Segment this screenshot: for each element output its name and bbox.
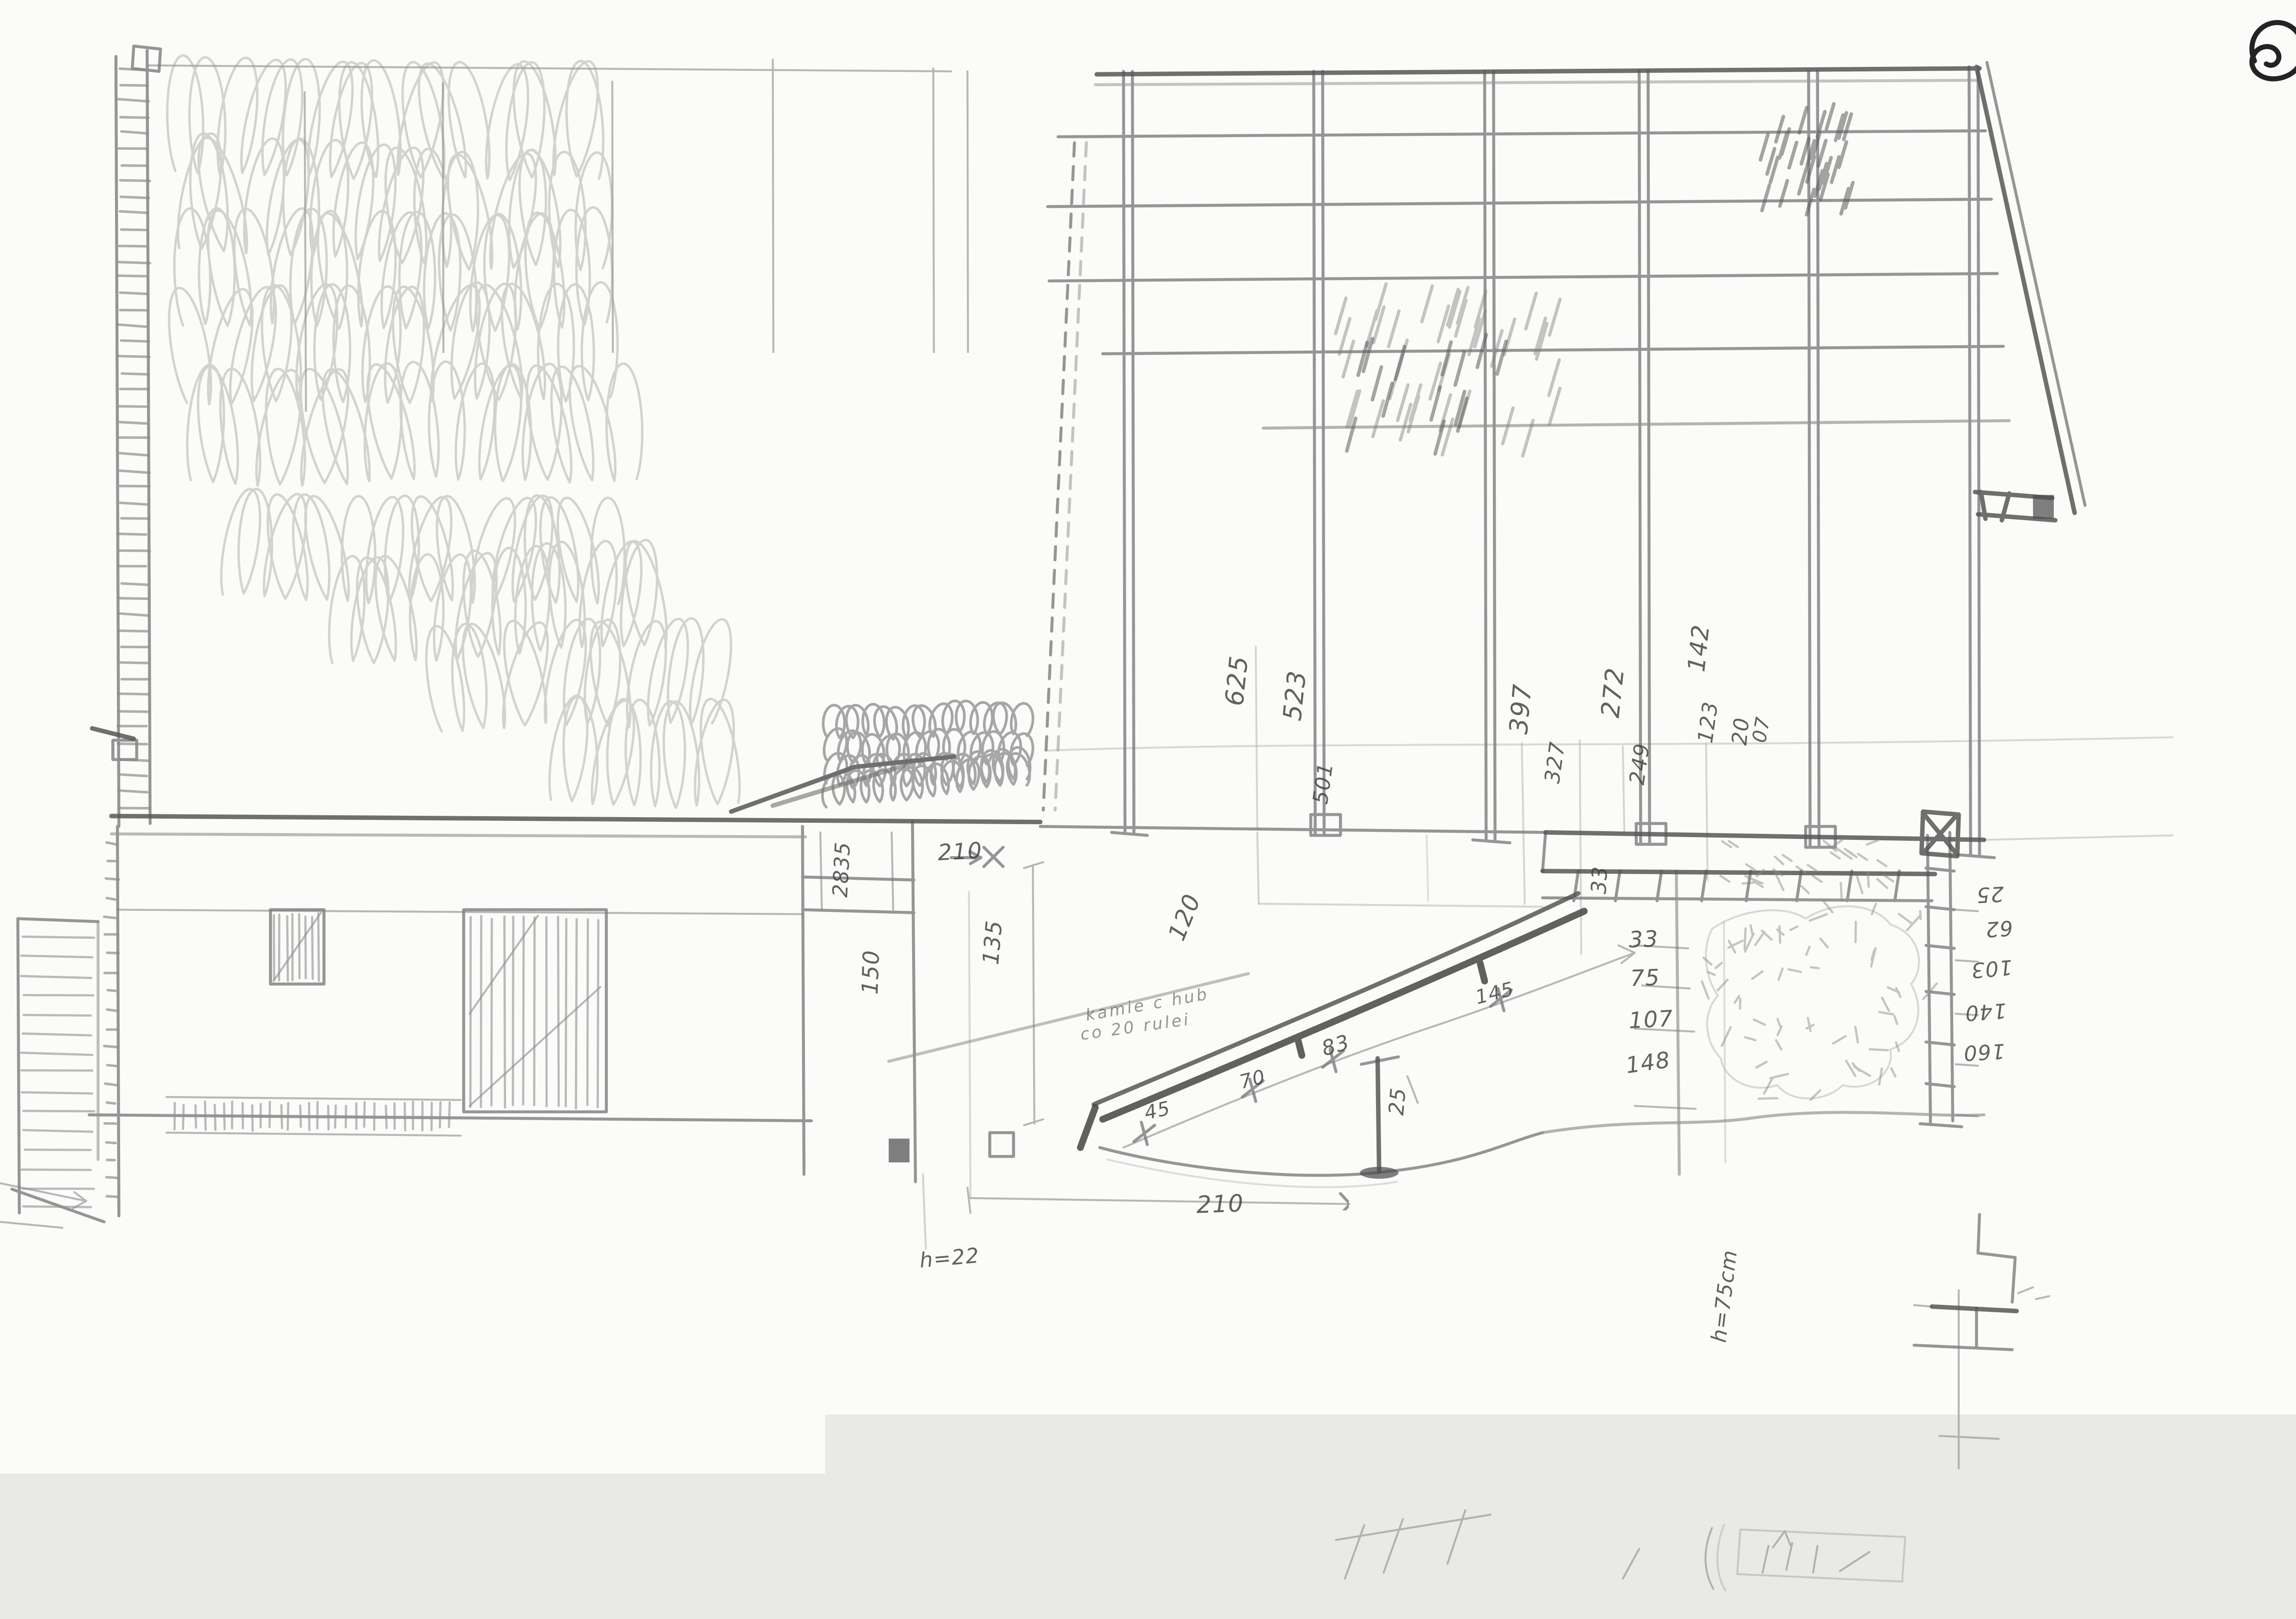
sum-left-7: 37 <box>1519 1591 1550 1619</box>
dim-523: 523 <box>1279 669 1313 722</box>
sum-left-2: 33 <box>1514 1475 1545 1503</box>
sum-right-3: 40 <box>1613 1484 1642 1509</box>
dim-right-103: 103 <box>1969 954 2013 981</box>
dim-210-top: 210 <box>937 837 983 866</box>
thatch-scribble-area <box>167 56 740 808</box>
sum-left-1: 37 <box>1515 1445 1546 1474</box>
dim-272: 272 <box>1596 666 1631 719</box>
dim-625: 625 <box>1221 654 1255 708</box>
dim-25-stake: 25 <box>1385 1086 1411 1116</box>
dim-210-bottom: 210 <box>1196 1189 1245 1219</box>
dim-33-side: 33 <box>1588 865 1613 895</box>
sum-right-1: 33 <box>1609 1439 1639 1465</box>
wall-shading-patch <box>1336 284 1560 456</box>
dim-07: 07 <box>1749 715 1776 745</box>
dim-142: 142 <box>1682 623 1715 673</box>
zoom-wrapper: 625 523 501 397 327 272 249 142 123 20 0… <box>0 0 2296 1619</box>
steps-18-lower: 18 <box>1943 1387 1971 1411</box>
sum-total: 38,0 <box>1595 1509 1656 1543</box>
dim-107: 107 <box>1628 1005 1674 1034</box>
pencil-drawing <box>0 0 2296 1619</box>
dim-2835: 2835 <box>830 841 856 898</box>
dim-33: 33 <box>1628 926 1659 954</box>
sketch-page: 625 523 501 397 327 272 249 142 123 20 0… <box>0 0 2296 1619</box>
dim-397: 397 <box>1505 683 1539 735</box>
dim-150: 150 <box>857 949 885 995</box>
dim-75: 75 <box>1630 964 1660 992</box>
ground-dirt-scribble <box>1702 839 1936 1100</box>
door-and-floor-hatching <box>21 913 598 1207</box>
dark-pencil-lines <box>92 67 2075 1619</box>
dim-right-25: 25 <box>1975 881 2005 906</box>
dim-135: 135 <box>978 919 1008 966</box>
dim-right-160: 160 <box>1962 1038 2006 1064</box>
bush-scribble <box>823 701 1033 807</box>
ladder-wall-hatching <box>104 69 150 1197</box>
steps-18-upper: 18 <box>2003 1353 2030 1376</box>
spiral-rotate-icon <box>2252 23 2296 79</box>
dim-right-62: 62 <box>1984 915 2014 940</box>
dim-right-140: 140 <box>1964 998 2007 1024</box>
